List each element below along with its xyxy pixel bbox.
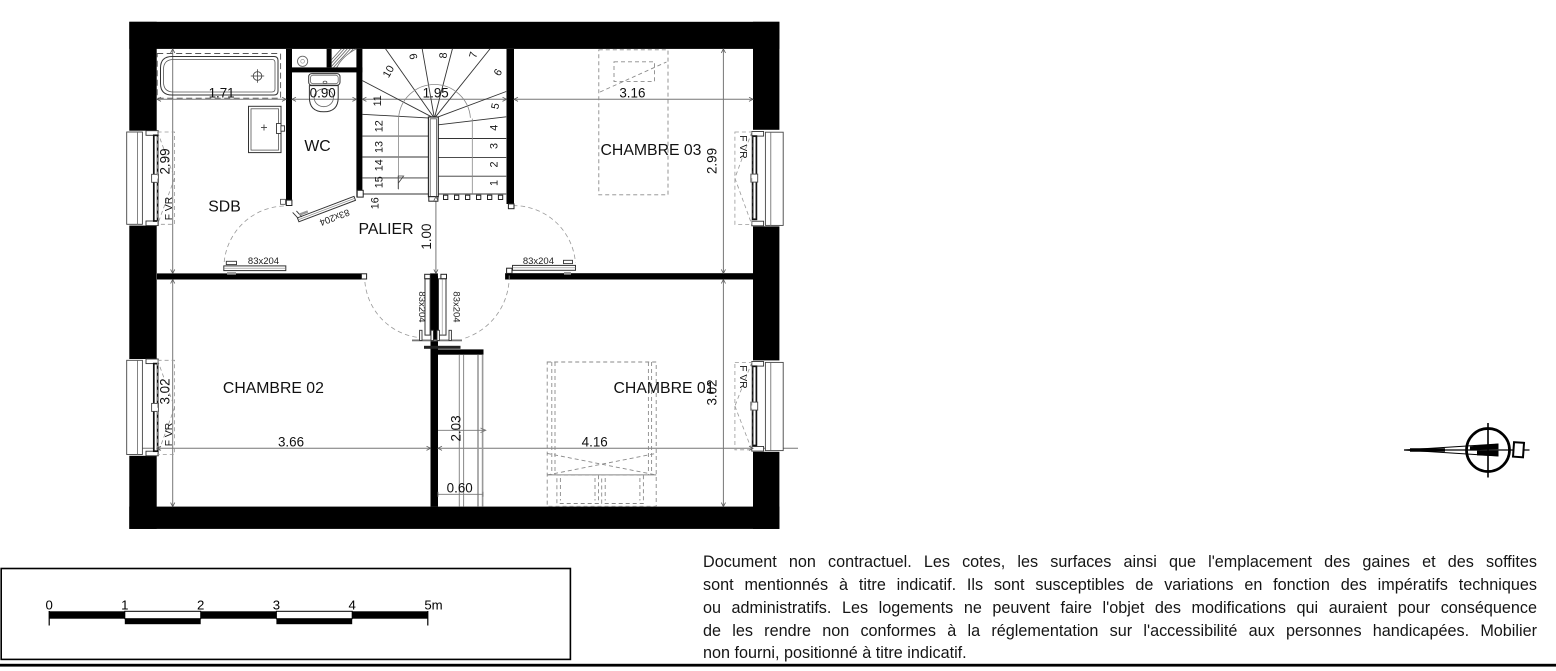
- svg-text:2.99: 2.99: [158, 148, 173, 174]
- svg-text:83x204: 83x204: [248, 256, 279, 267]
- svg-text:CHAMBRE 01: CHAMBRE 01: [614, 380, 715, 397]
- svg-text:83x204: 83x204: [451, 291, 462, 322]
- svg-text:7: 7: [467, 51, 480, 60]
- svg-text:4: 4: [489, 125, 501, 131]
- svg-text:1.95: 1.95: [423, 86, 449, 101]
- svg-text:3.02: 3.02: [704, 379, 719, 405]
- svg-text:13: 13: [374, 141, 386, 153]
- svg-text:83x204: 83x204: [416, 291, 427, 322]
- svg-text:5m: 5m: [424, 597, 442, 612]
- svg-text:3: 3: [489, 143, 501, 149]
- svg-text:16: 16: [370, 197, 382, 209]
- svg-text:3.02: 3.02: [158, 378, 173, 404]
- svg-text:CHAMBRE 03: CHAMBRE 03: [601, 142, 702, 159]
- svg-text:1: 1: [121, 597, 128, 612]
- svg-text:10: 10: [381, 64, 397, 80]
- svg-text:0.60: 0.60: [447, 480, 473, 495]
- svg-text:1.71: 1.71: [209, 86, 235, 101]
- svg-text:3.66: 3.66: [278, 435, 304, 450]
- svg-text:83x204: 83x204: [523, 256, 554, 267]
- svg-text:2.03: 2.03: [448, 415, 463, 441]
- svg-text:F VR: F VR: [164, 423, 175, 446]
- svg-text:2: 2: [197, 597, 204, 612]
- svg-text:F VR: F VR: [737, 365, 748, 388]
- svg-text:3.16: 3.16: [619, 86, 645, 101]
- svg-text:0.90: 0.90: [310, 86, 336, 101]
- svg-text:1: 1: [489, 180, 501, 186]
- svg-text:9: 9: [408, 52, 421, 60]
- svg-text:2.99: 2.99: [705, 148, 720, 174]
- svg-text:F VR: F VR: [737, 135, 748, 158]
- svg-text:PALIER: PALIER: [358, 221, 413, 238]
- svg-text:4.16: 4.16: [582, 435, 608, 450]
- svg-text:CHAMBRE 02: CHAMBRE 02: [223, 380, 324, 397]
- svg-text:F VR: F VR: [164, 197, 175, 220]
- svg-text:15: 15: [374, 176, 386, 188]
- svg-text:8: 8: [438, 52, 450, 59]
- svg-text:5: 5: [489, 102, 502, 110]
- svg-text:WC: WC: [304, 138, 330, 155]
- svg-text:SDB: SDB: [208, 198, 240, 215]
- svg-text:12: 12: [374, 120, 386, 132]
- svg-text:11: 11: [372, 95, 384, 106]
- svg-text:3: 3: [273, 597, 280, 612]
- svg-text:1.00: 1.00: [419, 224, 434, 250]
- svg-text:14: 14: [374, 159, 386, 171]
- svg-text:2: 2: [489, 161, 501, 167]
- svg-text:0: 0: [46, 597, 53, 612]
- svg-text:6: 6: [492, 67, 505, 78]
- svg-text:4: 4: [349, 597, 356, 612]
